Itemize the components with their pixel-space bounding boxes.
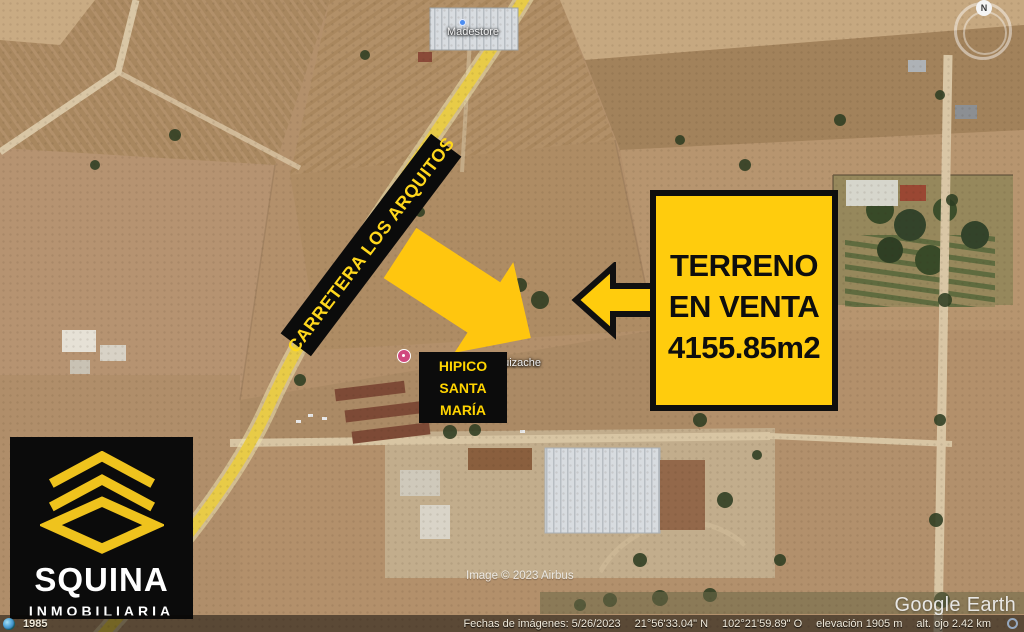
logo-name: SQUINA [34,561,168,599]
history-year-label[interactable]: 1985 [23,618,47,630]
sale-sign-line2: EN VENTA [669,286,819,327]
agency-logo: SQUINA INMOBILIARIA [10,437,193,619]
hipico-line3: MARÍA [440,399,486,421]
elevation-readout: elevación 1905 m [816,618,902,630]
property-arrow-icon [378,205,553,355]
sale-sign-area: 4155.85m2 [668,327,820,368]
hipico-line2: SANTA [439,377,486,399]
eye-altitude-readout: alt. ojo 2.42 km [916,618,991,630]
imagery-date-label: Fechas de imágenes: 5/26/2023 [463,618,620,630]
poi-label-madestore[interactable]: Madestore [438,26,508,38]
globe-icon[interactable] [3,618,15,630]
hipico-line1: HIPICO [439,355,487,377]
sale-sign: TERRENO EN VENTA 4155.85m2 [650,190,838,411]
logo-chevrons-icon [40,451,164,555]
google-earth-watermark: Google Earth [895,594,1016,617]
latitude-readout: 21°56'33.04" N [635,618,708,630]
hipico-label: HIPICO SANTA MARÍA [419,352,507,423]
poi-dot-icon[interactable] [459,19,466,26]
status-bar: 1985 Fechas de imágenes: 5/26/2023 21°56… [0,615,1024,632]
sale-sign-line1: TERRENO [670,245,818,286]
longitude-readout: 102°21'59.89" O [722,618,802,630]
compass-north-label: N [981,3,988,13]
google-earth-viewport: Madestore huizache CARRETERA LOS ARQUITO… [0,0,1024,632]
status-readouts: Fechas de imágenes: 5/26/2023 21°56'33.0… [463,618,1018,630]
compass-north-button[interactable]: N [976,0,992,16]
status-orb-icon[interactable] [1007,618,1018,629]
imagery-credit-watermark: Image © 2023 Airbus [466,570,574,582]
